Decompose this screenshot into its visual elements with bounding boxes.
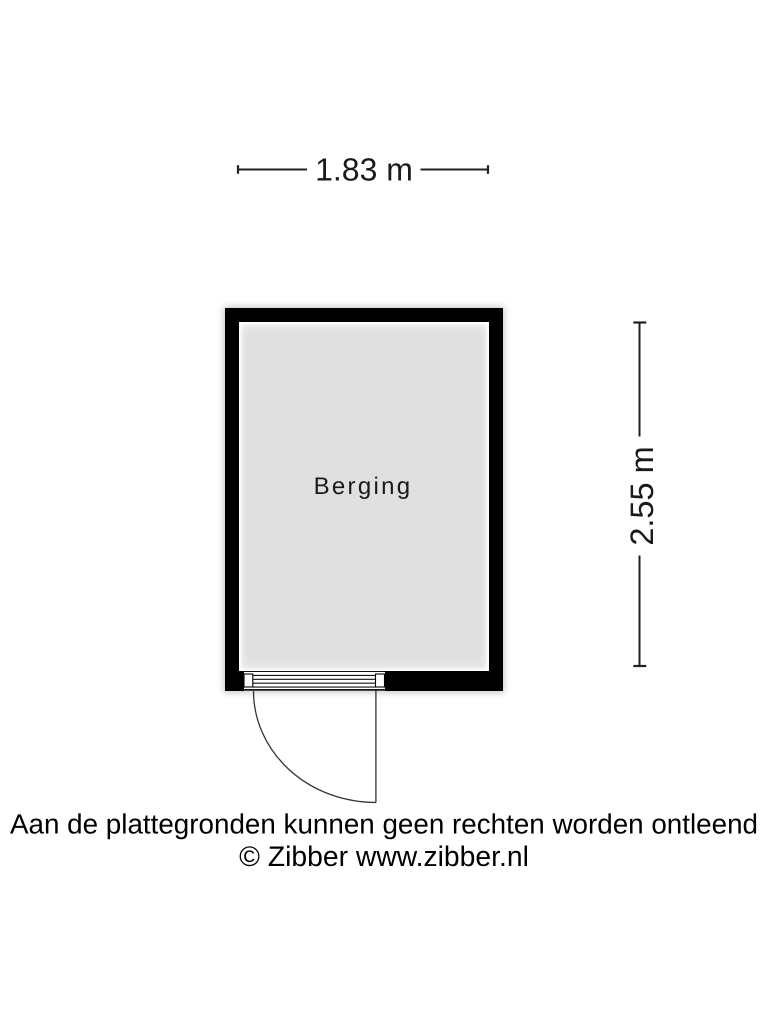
svg-text:1.83 m: 1.83 m bbox=[315, 152, 413, 188]
svg-text:Aan de plattegronden kunnen ge: Aan de plattegronden kunnen geen rechten… bbox=[10, 809, 758, 840]
svg-text:© Zibber www.zibber.nl: © Zibber www.zibber.nl bbox=[239, 840, 529, 872]
svg-text:2.55 m: 2.55 m bbox=[624, 446, 660, 545]
svg-text:Berging: Berging bbox=[314, 473, 413, 500]
